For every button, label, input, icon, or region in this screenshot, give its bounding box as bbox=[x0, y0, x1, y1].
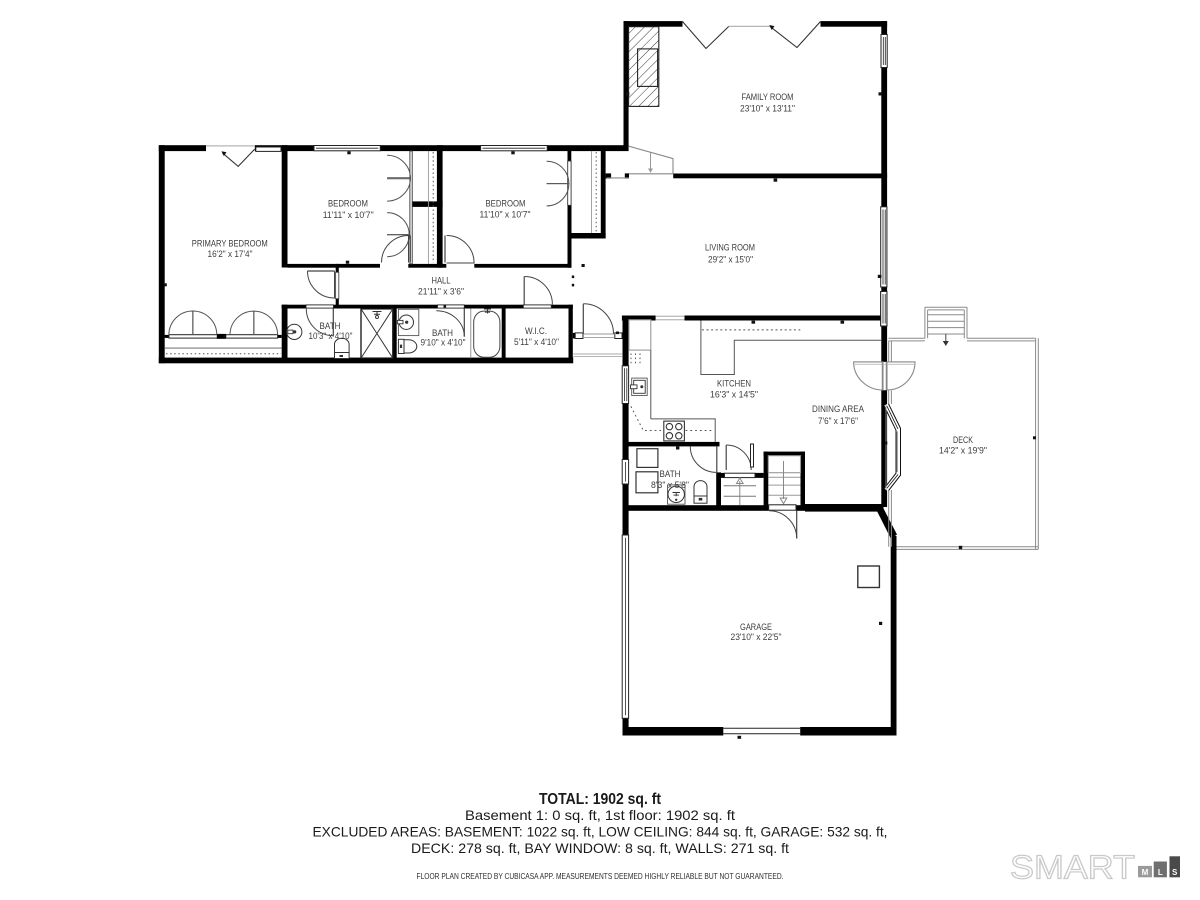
svg-text:FLOOR PLAN CREATED BY CUBICASA: FLOOR PLAN CREATED BY CUBICASA APP. MEAS… bbox=[417, 872, 784, 881]
svg-text:16'3" x 14'5": 16'3" x 14'5" bbox=[710, 390, 758, 400]
svg-text:LIVING ROOM: LIVING ROOM bbox=[705, 243, 755, 253]
svg-text:KITCHEN: KITCHEN bbox=[717, 379, 751, 389]
svg-text:9'10" x 4'10": 9'10" x 4'10" bbox=[421, 338, 466, 348]
svg-text:L: L bbox=[1158, 868, 1163, 877]
svg-text:Basement 1: 0 sq. ft, 1st floo: Basement 1: 0 sq. ft, 1st floor: 1902 sq… bbox=[465, 808, 735, 823]
svg-text:DECK: 278 sq. ft, BAY WINDOW:: DECK: 278 sq. ft, BAY WINDOW: 8 sq. ft, … bbox=[411, 841, 789, 856]
svg-text:SMART: SMART bbox=[1010, 849, 1135, 886]
svg-text:FAMILY ROOM: FAMILY ROOM bbox=[742, 92, 794, 102]
svg-text:23'10" x 13'11": 23'10" x 13'11" bbox=[740, 104, 795, 114]
svg-text:8'3" x 5'8": 8'3" x 5'8" bbox=[651, 480, 689, 490]
svg-text:M: M bbox=[1142, 868, 1149, 877]
svg-text:11'11" x 10'7": 11'11" x 10'7" bbox=[323, 210, 374, 220]
svg-text:HALL: HALL bbox=[432, 276, 451, 286]
svg-text:29'2" x 15'0": 29'2" x 15'0" bbox=[708, 254, 753, 264]
svg-text:11'10" x 10'7": 11'10" x 10'7" bbox=[480, 210, 531, 220]
svg-text:BATH: BATH bbox=[320, 321, 341, 331]
svg-text:DINING AREA: DINING AREA bbox=[812, 404, 864, 414]
svg-text:14'2" x 19'9": 14'2" x 19'9" bbox=[939, 446, 987, 456]
svg-text:7'6" x 17'6": 7'6" x 17'6" bbox=[818, 416, 858, 426]
svg-text:GARAGE: GARAGE bbox=[740, 622, 772, 632]
svg-text:EXCLUDED AREAS: BASEMENT: 1022: EXCLUDED AREAS: BASEMENT: 1022 sq. ft, L… bbox=[313, 824, 888, 839]
svg-text:DECK: DECK bbox=[953, 435, 973, 445]
svg-text:BEDROOM: BEDROOM bbox=[486, 199, 526, 209]
svg-text:W.I.C.: W.I.C. bbox=[525, 326, 547, 336]
svg-text:21'11" x 3'6": 21'11" x 3'6" bbox=[418, 286, 464, 296]
svg-text:16'2" x 17'4": 16'2" x 17'4" bbox=[208, 249, 253, 259]
svg-text:S: S bbox=[1172, 868, 1178, 877]
svg-text:5'11" x 4'10": 5'11" x 4'10" bbox=[514, 337, 559, 347]
svg-text:PRIMARY BEDROOM: PRIMARY BEDROOM bbox=[192, 239, 268, 249]
svg-text:23'10" x 22'5": 23'10" x 22'5" bbox=[731, 632, 782, 642]
svg-text:TOTAL: 1902 sq. ft: TOTAL: 1902 sq. ft bbox=[539, 791, 661, 808]
svg-text:10'3" x 4'10": 10'3" x 4'10" bbox=[309, 331, 353, 341]
svg-text:BATH: BATH bbox=[660, 469, 681, 479]
svg-text:BEDROOM: BEDROOM bbox=[328, 199, 368, 209]
